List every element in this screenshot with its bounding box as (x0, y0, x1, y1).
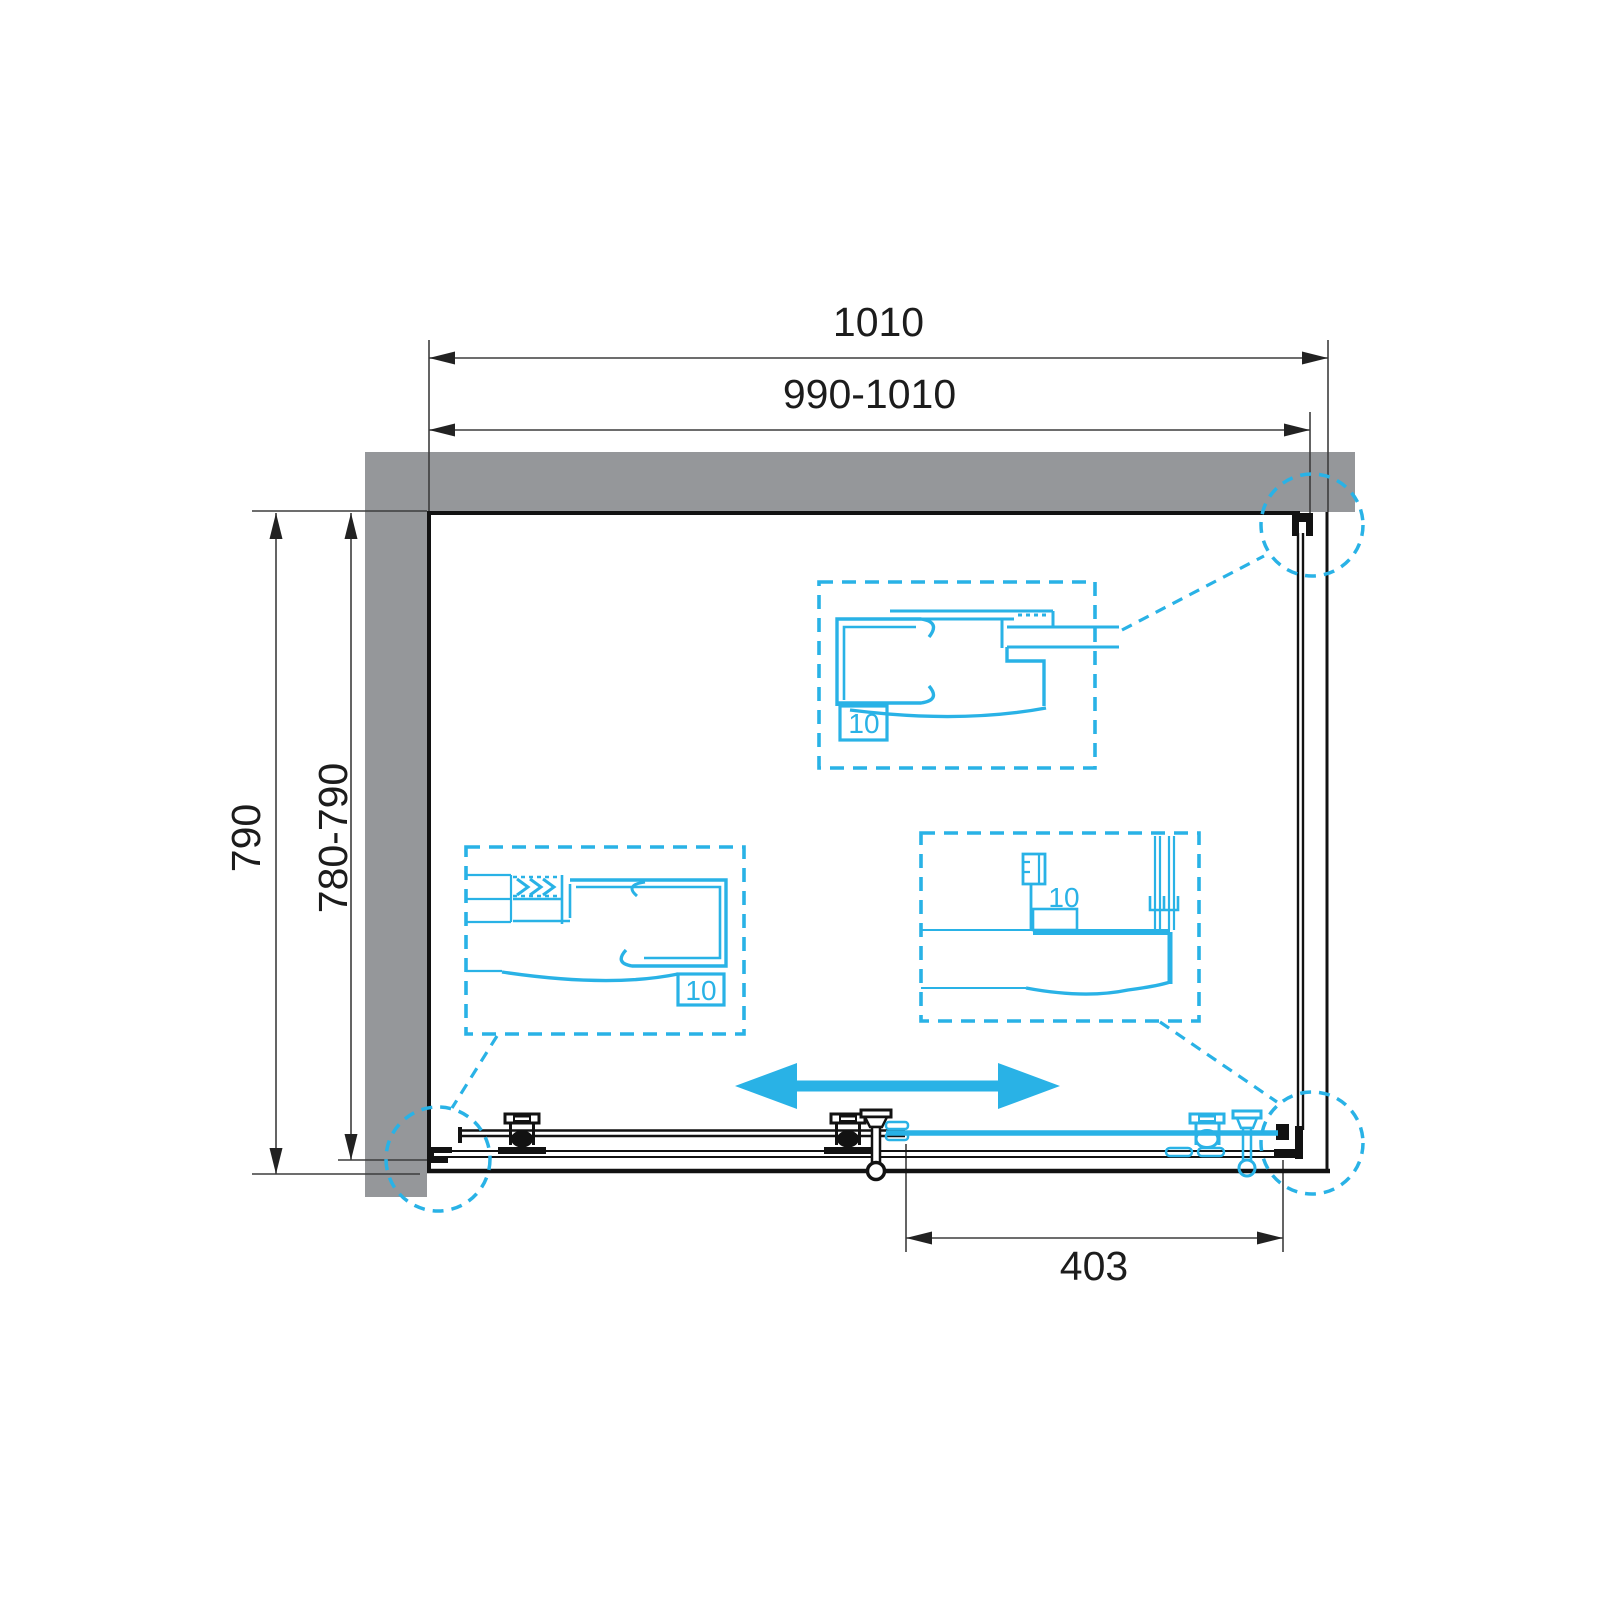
technical-drawing-canvas: 1010 990-1010 790 780-790 403 10 10 10 (0, 0, 1600, 1600)
detail-callout-top (819, 582, 1119, 768)
corner-bracket-bottom-right (1274, 1124, 1303, 1159)
label-width-overall: 1010 (429, 300, 1328, 344)
label-glass-thickness-top: 10 (841, 708, 887, 739)
enclosure-frame (427, 511, 1330, 1173)
door-roller-left (498, 1114, 546, 1154)
wall-left (365, 452, 427, 1197)
corner-bracket-top-right (1292, 513, 1313, 536)
detail-callout-right (921, 833, 1199, 1021)
corner-detail-circle-bottom-right (1261, 1092, 1363, 1194)
dim-door-opening (906, 1144, 1283, 1252)
label-glass-thickness-bottom: 10 (1041, 882, 1087, 913)
label-glass-thickness-wall: 10 (678, 975, 724, 1006)
side-glass-panel (1298, 533, 1303, 1130)
sliding-door-open-position (886, 1111, 1278, 1176)
wall-top (365, 452, 1355, 512)
label-depth-overall: 790 (224, 738, 268, 938)
door-roller-right (824, 1114, 872, 1154)
label-door-opening: 403 (994, 1244, 1194, 1288)
slide-direction-arrow (735, 1063, 1060, 1109)
wall-bracket-bottom-left (428, 1147, 452, 1163)
label-width-range: 990-1010 (429, 372, 1310, 416)
label-depth-range: 780-790 (311, 738, 355, 938)
